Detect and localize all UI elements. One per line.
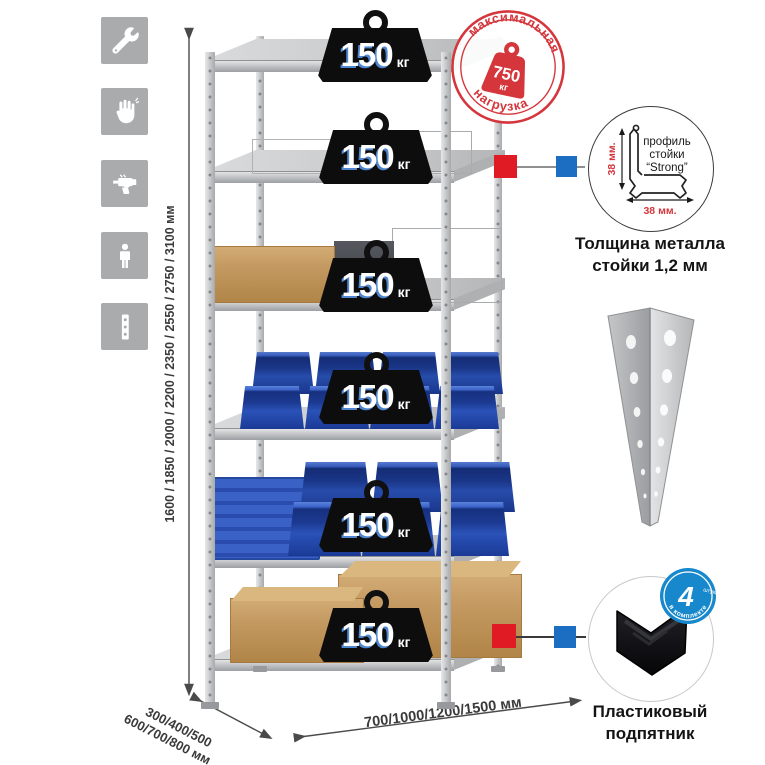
box-flap — [339, 561, 521, 577]
wrench-icon — [101, 17, 148, 64]
max-load-stamp: максимальная нагрузка 750 кг — [438, 0, 578, 137]
foot-caption-line2: подпятник — [606, 724, 695, 743]
profile-label-line3: “Strong” — [646, 162, 688, 174]
red-marker — [494, 155, 517, 178]
profile-label-line1: профиль — [643, 136, 691, 148]
post-profile-icon — [101, 303, 148, 350]
blue-marker — [556, 156, 577, 177]
rack-foot — [491, 666, 505, 672]
shelf-load-badge: 150кг — [318, 480, 434, 552]
storage-bin — [240, 386, 304, 429]
foot-caption-line1: Пластиковый — [593, 702, 708, 721]
load-value: 150 — [342, 378, 394, 416]
shelf-load-badge: 150кг — [318, 112, 434, 184]
rack-upright-front-left — [205, 52, 215, 704]
shelf-load-badge: 150кг — [318, 352, 434, 424]
quantity-badge: 4 штуки в комплекте — [659, 567, 717, 625]
load-unit: кг — [398, 634, 411, 650]
profile-dim-vertical: 38 мм. — [606, 142, 618, 175]
load-value: 150 — [342, 506, 394, 544]
load-value: 150 — [342, 266, 394, 304]
profile-caption-line2: стойки 1,2 мм — [592, 256, 708, 275]
rack-upright-front-right — [441, 52, 451, 704]
shelf-load-badge: 150кг — [318, 590, 434, 662]
corner-post-illustration — [598, 300, 702, 530]
shelf-load-badge: 150кг — [317, 10, 433, 82]
profile-caption-line1: Толщина металла — [575, 234, 725, 253]
product-infographic: { "sidebar_icons": [ {"name": "wrench"},… — [0, 0, 765, 765]
rack-foot — [201, 702, 219, 709]
load-value: 150 — [342, 616, 394, 654]
profile-caption: Толщина металла стойки 1,2 мм — [570, 233, 730, 277]
load-unit: кг — [398, 396, 411, 412]
load-unit: кг — [398, 524, 411, 540]
load-unit: кг — [398, 284, 411, 300]
load-unit: кг — [398, 156, 411, 172]
gloves-icon — [101, 88, 148, 135]
red-marker — [492, 624, 516, 648]
person-icon — [101, 232, 148, 279]
rack-foot — [437, 702, 455, 709]
cardboard-box — [213, 246, 335, 303]
shelf-load-badge: 150кг — [318, 240, 434, 312]
height-dimension-label: 1600 / 1850 / 2000 / 2200 / 2350 / 2550 … — [163, 205, 177, 522]
shelf-edge — [205, 428, 454, 440]
foot-caption: Пластиковый подпятник — [570, 701, 730, 745]
badge-number: 4 — [677, 581, 694, 612]
load-value: 150 — [341, 36, 393, 74]
profile-label-line2: стойки — [649, 149, 684, 161]
profile-dim-horizontal: 38 мм. — [643, 205, 676, 217]
drill-icon — [101, 160, 148, 207]
load-unit: кг — [397, 54, 410, 70]
profile-callout-circle: 38 мм. 38 мм. профиль стойки “Strong” — [588, 106, 714, 232]
rack-foot — [253, 666, 267, 672]
load-value: 150 — [342, 138, 394, 176]
blue-marker — [554, 626, 576, 648]
